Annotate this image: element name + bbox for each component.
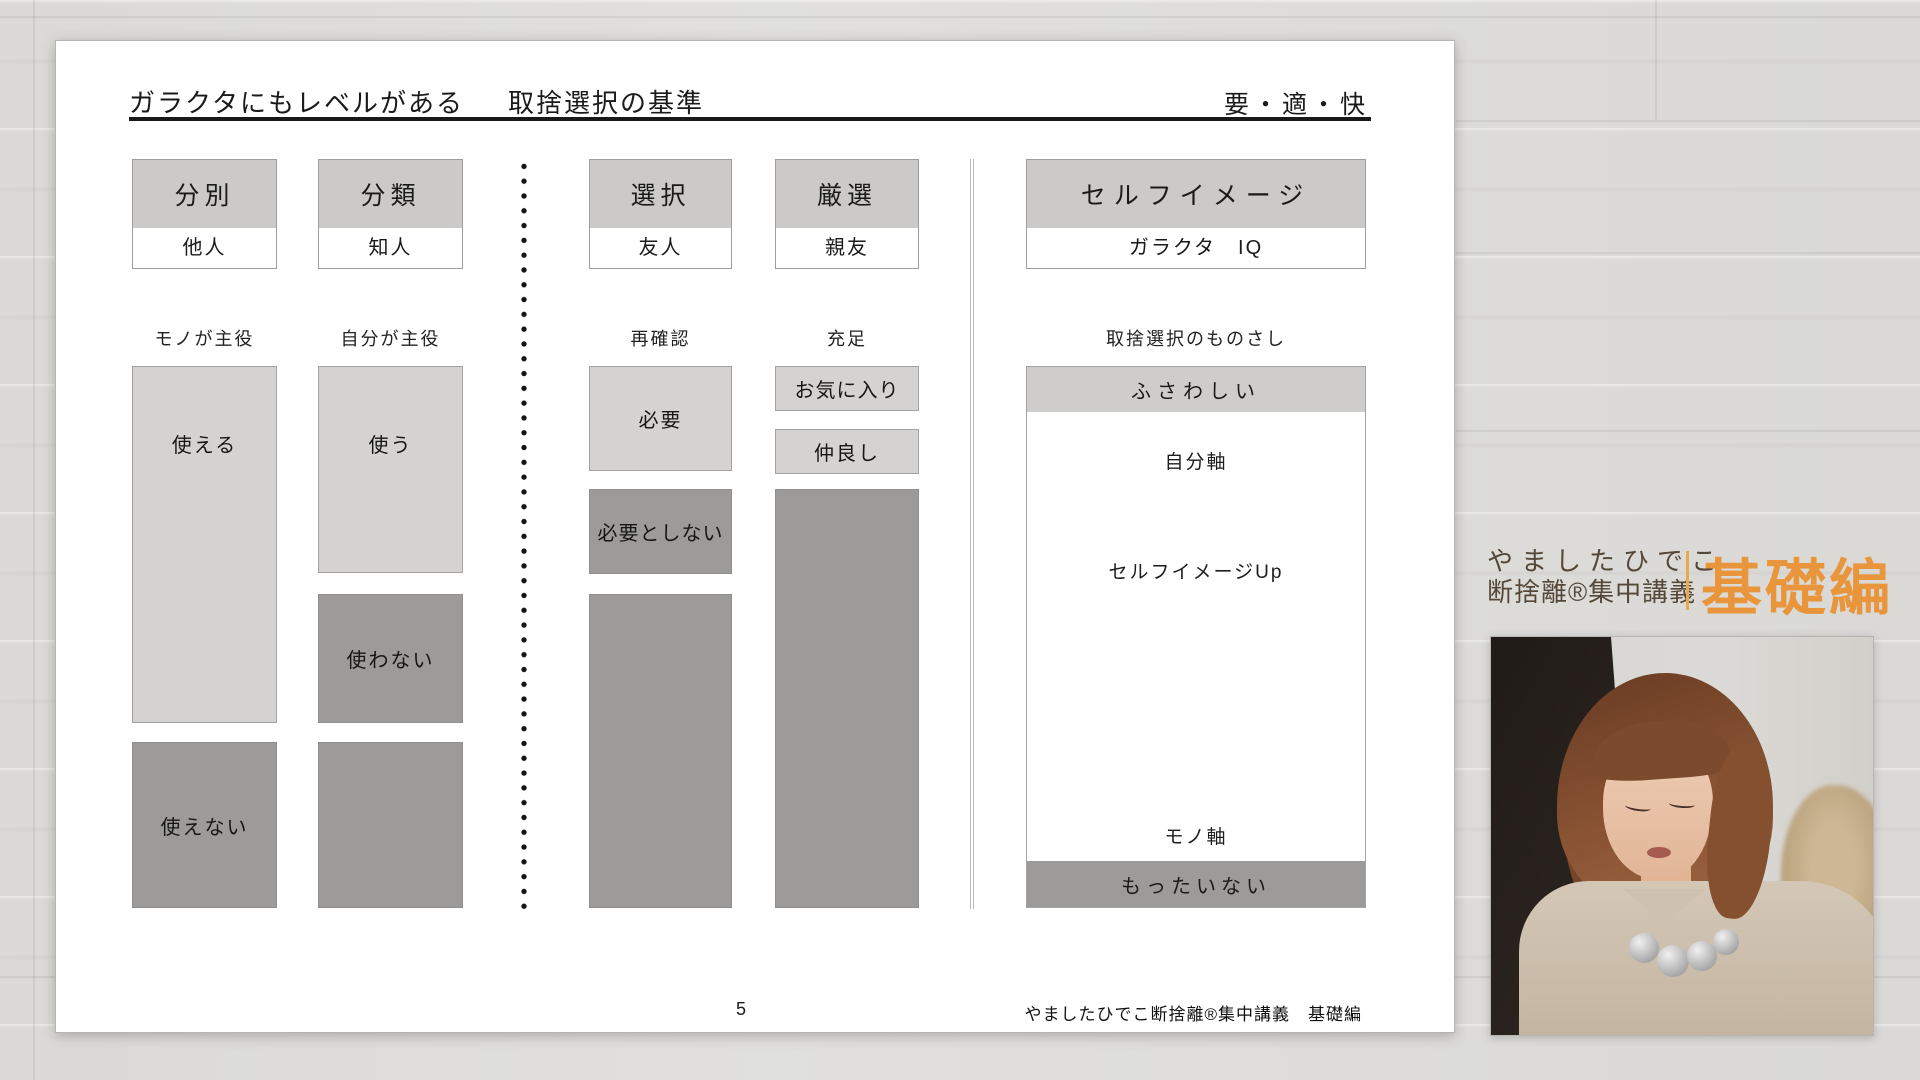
branding-edition: 基礎編 (1701, 538, 1893, 627)
axis-label-selfimage-up: セルフイメージUp (1027, 557, 1365, 584)
level-box: 使わない (318, 594, 463, 723)
role-label: 取捨選択のものさし (1026, 328, 1366, 350)
role-label: モノが主役 (132, 328, 277, 350)
wood-seam (1456, 120, 1920, 122)
level-box: 必要としない (589, 489, 732, 574)
stage-header-box-gensen: 厳選 親友 (775, 159, 919, 269)
selfimage-scale-box: ふさわしい 自分軸 セルフイメージUp モノ軸 もったいない (1026, 366, 1366, 908)
title-underline (129, 117, 1371, 121)
wood-seam (1655, 0, 1657, 120)
presenter-mouth (1647, 847, 1671, 858)
level-box: 必要 (589, 366, 732, 471)
wood-seam (0, 16, 1920, 18)
page-number: 5 (706, 999, 776, 1020)
course-branding: やましたひでこ 断捨離®集中講義 (1487, 546, 1725, 607)
presenter-collar (1623, 889, 1707, 923)
necklace-bead (1713, 929, 1739, 955)
branding-course: 断捨離®集中講義 (1487, 577, 1725, 607)
level-box: 使える (132, 366, 277, 723)
slide-credit: やましたひでこ断捨離®集中講義 基礎編 (1024, 1000, 1362, 1025)
presenter-video (1490, 636, 1874, 1036)
role-label: 充足 (775, 328, 919, 350)
level-box-unlabeled (775, 489, 919, 908)
presentation-slide: ガラクタにもレベルがある取捨選択の基準 要・適・快 分別 他人 分類 知人 選択… (55, 40, 1455, 1033)
axis-label-self: 自分軸 (1027, 447, 1365, 474)
level-box: 使う (318, 366, 463, 573)
wood-seam (1456, 430, 1920, 432)
scale-top-band: ふさわしい (1027, 367, 1365, 412)
stage-header-label: 選択 (590, 160, 731, 228)
level-box: 仲良し (775, 429, 919, 474)
wood-seam (33, 0, 35, 1080)
slide-title-right: 要・適・快 (1224, 85, 1369, 121)
necklace-bead (1629, 933, 1659, 963)
axis-label-mono: モノ軸 (1027, 822, 1365, 849)
stage-owner-label: 親友 (776, 228, 918, 268)
stage-header-label: 分類 (319, 160, 462, 228)
stage-header-box-bunbetsu: 分別 他人 (132, 159, 277, 269)
level-box-unlabeled (318, 742, 463, 908)
dotted-divider (521, 159, 527, 911)
slide-title-part2: 取捨選択の基準 (508, 88, 704, 118)
level-box: 使えない (132, 742, 277, 908)
stage-header-label: セルフイメージ (1027, 160, 1365, 228)
level-box-unlabeled (589, 594, 732, 908)
stage-header-box-sentaku: 選択 友人 (589, 159, 732, 269)
branding-divider-bar (1686, 551, 1689, 610)
stage-header-label: 分別 (133, 160, 276, 228)
scale-bottom-band: もったいない (1027, 861, 1365, 907)
slide-title: ガラクタにもレベルがある取捨選択の基準 (129, 83, 704, 120)
stage-owner-label: 他人 (133, 228, 276, 268)
stage-header-box-selfimage: セルフイメージ ガラクタ IQ (1026, 159, 1366, 269)
slide-title-part1: ガラクタにもレベルがある (129, 88, 464, 118)
stage-header-box-bunrui: 分類 知人 (318, 159, 463, 269)
branding-author: やましたひでこ (1487, 546, 1725, 576)
stage-owner-label: 友人 (590, 228, 731, 268)
lecture-frame: { "slide": { "title": { "part1": "ガラクタにも… (0, 0, 1920, 1080)
stage-header-label: 厳選 (776, 160, 918, 228)
stage-owner-label: ガラクタ IQ (1027, 228, 1365, 268)
necklace-bead (1657, 945, 1689, 977)
wood-seam (1456, 252, 1920, 254)
double-line-divider (970, 159, 974, 909)
role-label: 再確認 (589, 328, 732, 350)
stage-owner-label: 知人 (319, 228, 462, 268)
level-box: お気に入り (775, 366, 919, 411)
role-label: 自分が主役 (318, 328, 463, 350)
